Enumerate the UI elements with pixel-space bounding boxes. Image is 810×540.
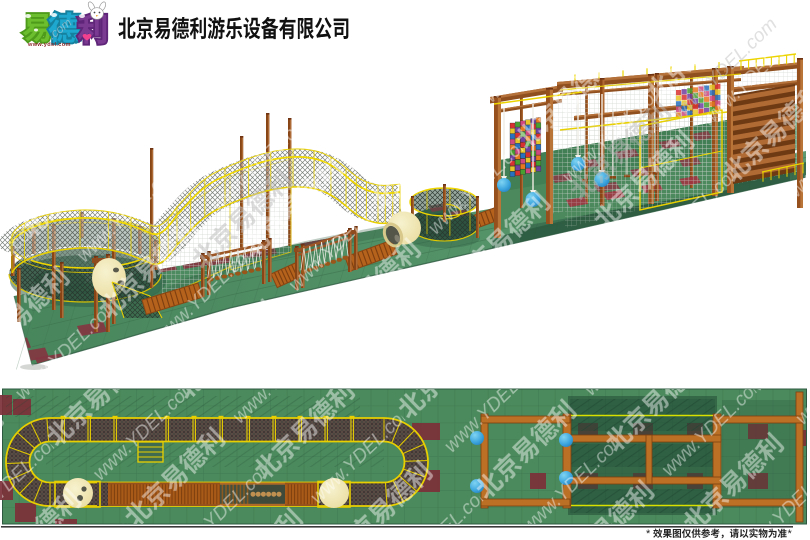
svg-text:*: * xyxy=(646,528,651,540)
svg-text:*: * xyxy=(788,528,793,540)
svg-text:www.ydsl.com: www.ydsl.com xyxy=(27,42,71,48)
